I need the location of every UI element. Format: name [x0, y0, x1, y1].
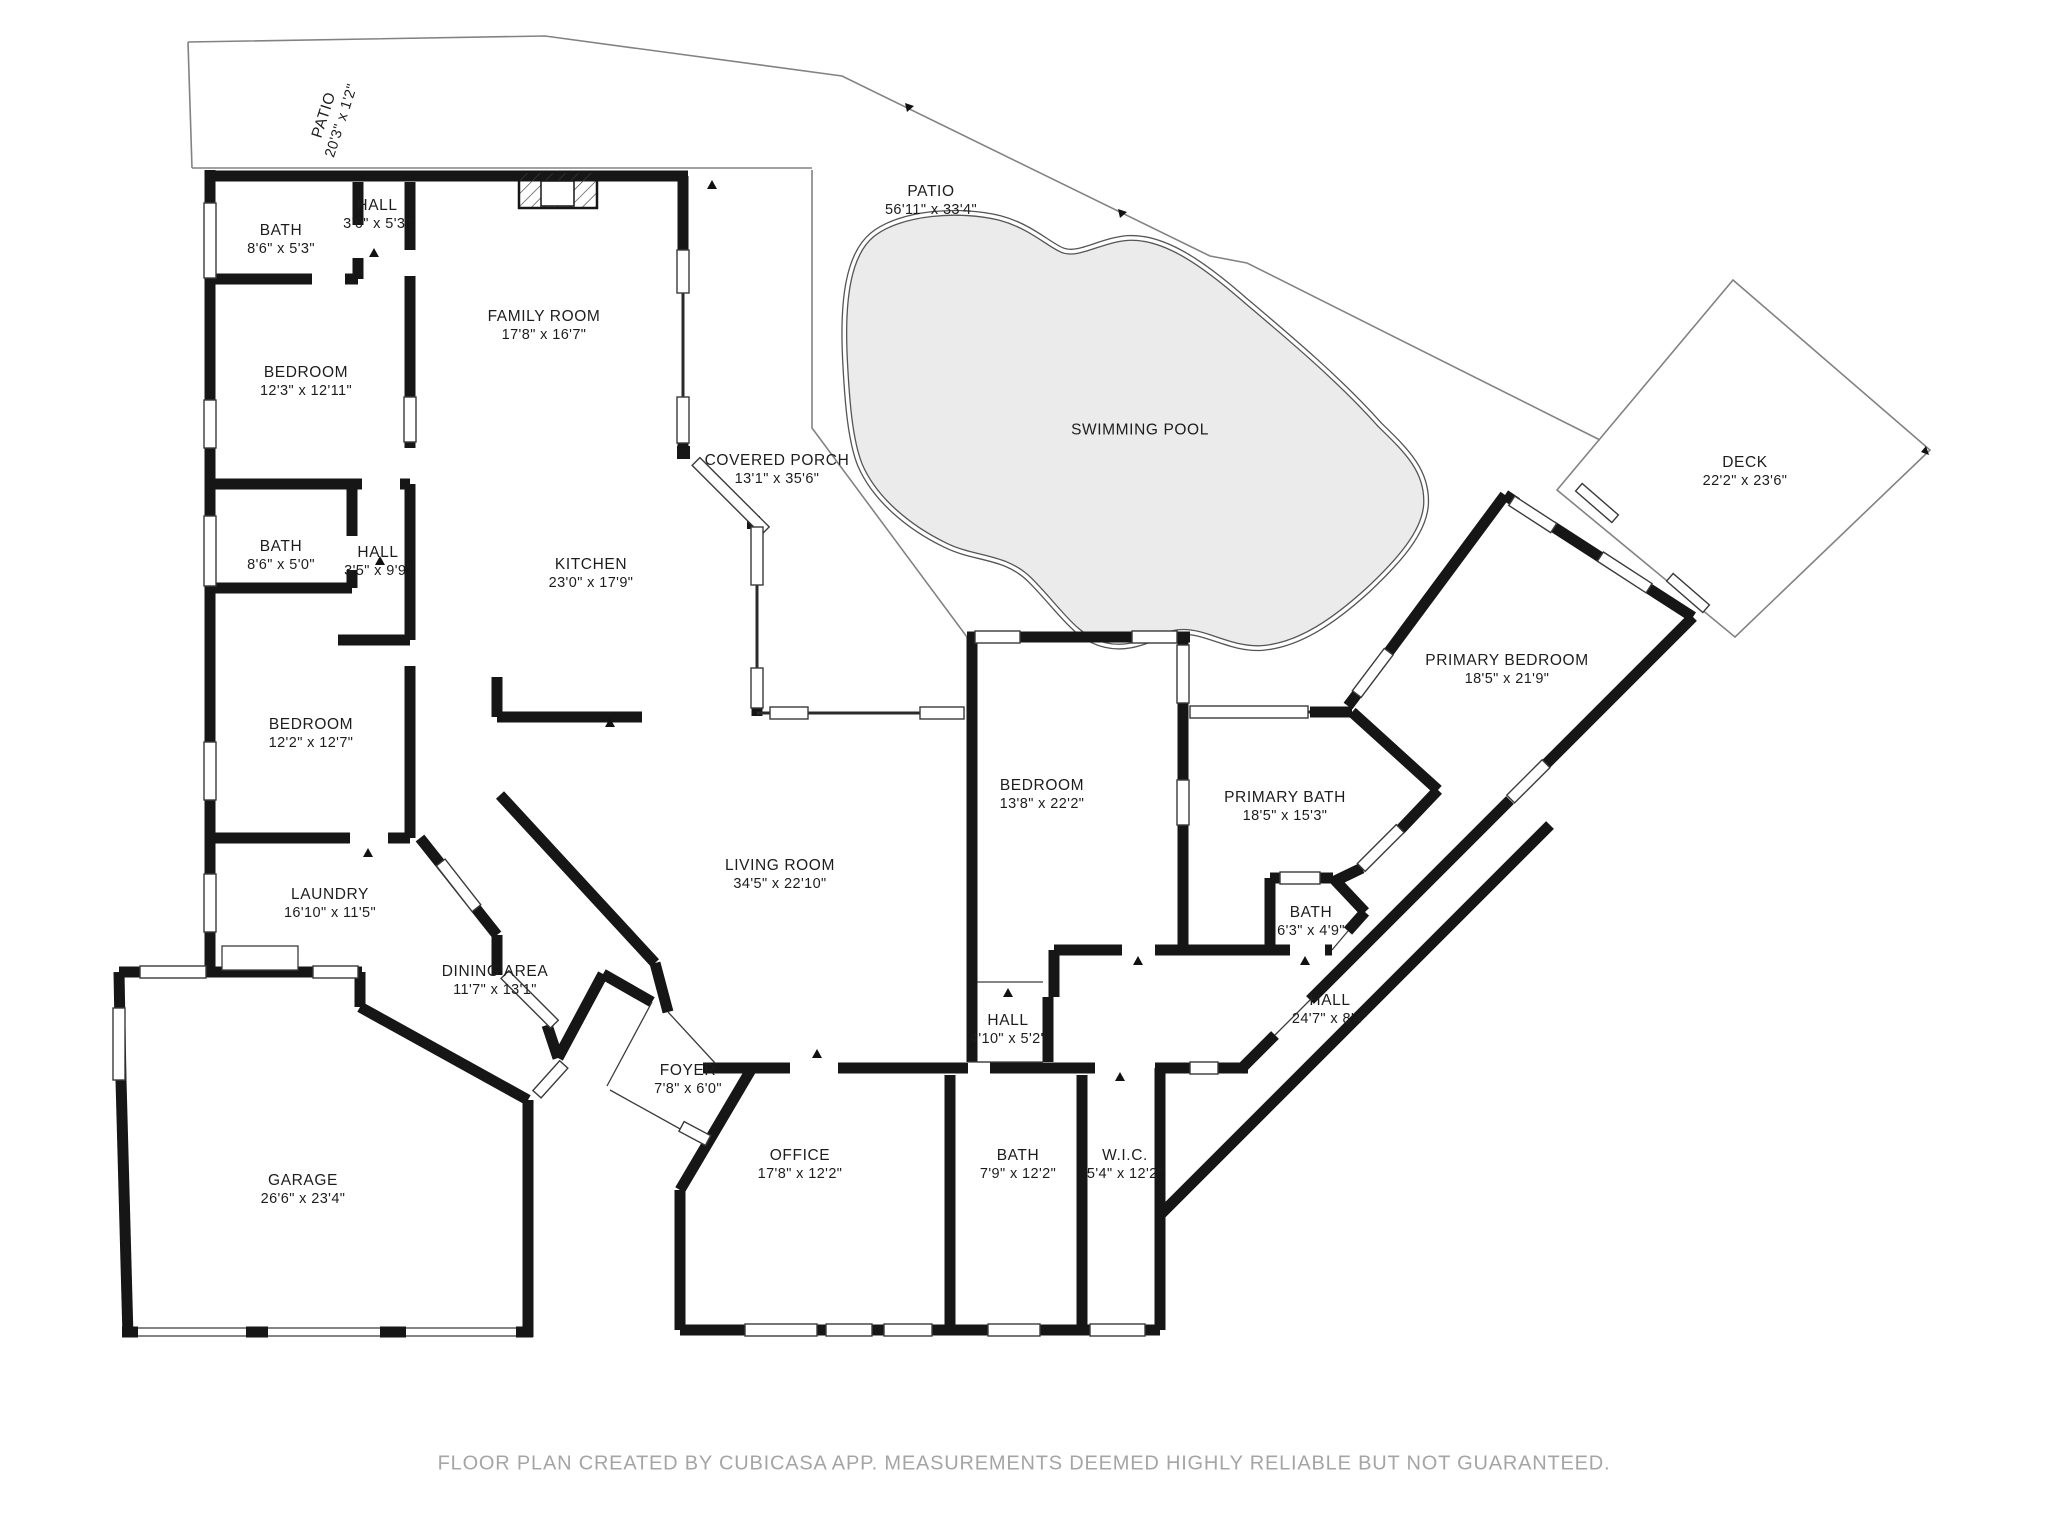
room-label-patio: PATIO56'11" x 33'4"	[885, 182, 977, 220]
room-label-bedroom-2: BEDROOM12'2" x 12'7"	[269, 715, 354, 753]
room-label-deck: DECK22'2" x 23'6"	[1703, 453, 1788, 491]
room-label-dining-area: DINING AREA11'7" x 13'1"	[442, 962, 549, 1000]
room-label-hall-4: HALL4'10" x 5'2"	[970, 1011, 1046, 1049]
room-label-garage: GARAGE26'6" x 23'4"	[261, 1171, 346, 1209]
room-label-hall-2: HALL3'5" x 9'9"	[344, 543, 412, 581]
room-label-hall-1: HALL3'6" x 5'3"	[343, 196, 411, 234]
floor-plan: PATIO20'3" x 1'2" BATH8'6" x 5'3" HALL3'…	[0, 0, 2048, 1536]
room-label-office: OFFICE17'8" x 12'2"	[758, 1146, 843, 1184]
room-label-foyer: FOYER7'8" x 6'0"	[654, 1061, 722, 1099]
room-label-bedroom-3: BEDROOM13'8" x 22'2"	[1000, 776, 1085, 814]
room-label-bath-1: BATH8'6" x 5'3"	[247, 221, 315, 259]
room-label-wic: W.I.C.5'4" x 12'2"	[1087, 1146, 1163, 1184]
room-label-bath-2: BATH8'6" x 5'0"	[247, 537, 315, 575]
room-label-bath-3: BATH6'3" x 4'9"	[1277, 903, 1345, 941]
room-label-primary-bedroom: PRIMARY BEDROOM18'5" x 21'9"	[1425, 651, 1588, 689]
room-label-laundry: LAUNDRY16'10" x 11'5"	[284, 885, 376, 923]
room-label-family-room: FAMILY ROOM17'8" x 16'7"	[488, 307, 601, 345]
room-label-bath-4: BATH7'9" x 12'2"	[980, 1146, 1056, 1184]
room-label-primary-bath: PRIMARY BATH18'5" x 15'3"	[1224, 788, 1346, 826]
room-label-living-room: LIVING ROOM34'5" x 22'10"	[725, 856, 835, 894]
room-label-bedroom-1: BEDROOM12'3" x 12'11"	[260, 363, 352, 401]
room-label-covered-porch: COVERED PORCH13'1" x 35'6"	[705, 451, 850, 489]
room-label-swimming-pool: SWIMMING POOL	[1071, 421, 1209, 440]
room-label-hall-3: HALL24'7" x 8'4"	[1292, 991, 1368, 1029]
room-label-kitchen: KITCHEN23'0" x 17'9"	[549, 555, 634, 593]
doors	[138, 931, 1348, 1336]
footer-disclaimer: FLOOR PLAN CREATED BY CUBICASA APP. MEAS…	[438, 1453, 1611, 1476]
fireplace	[519, 172, 597, 208]
laundry-counter	[222, 946, 298, 970]
